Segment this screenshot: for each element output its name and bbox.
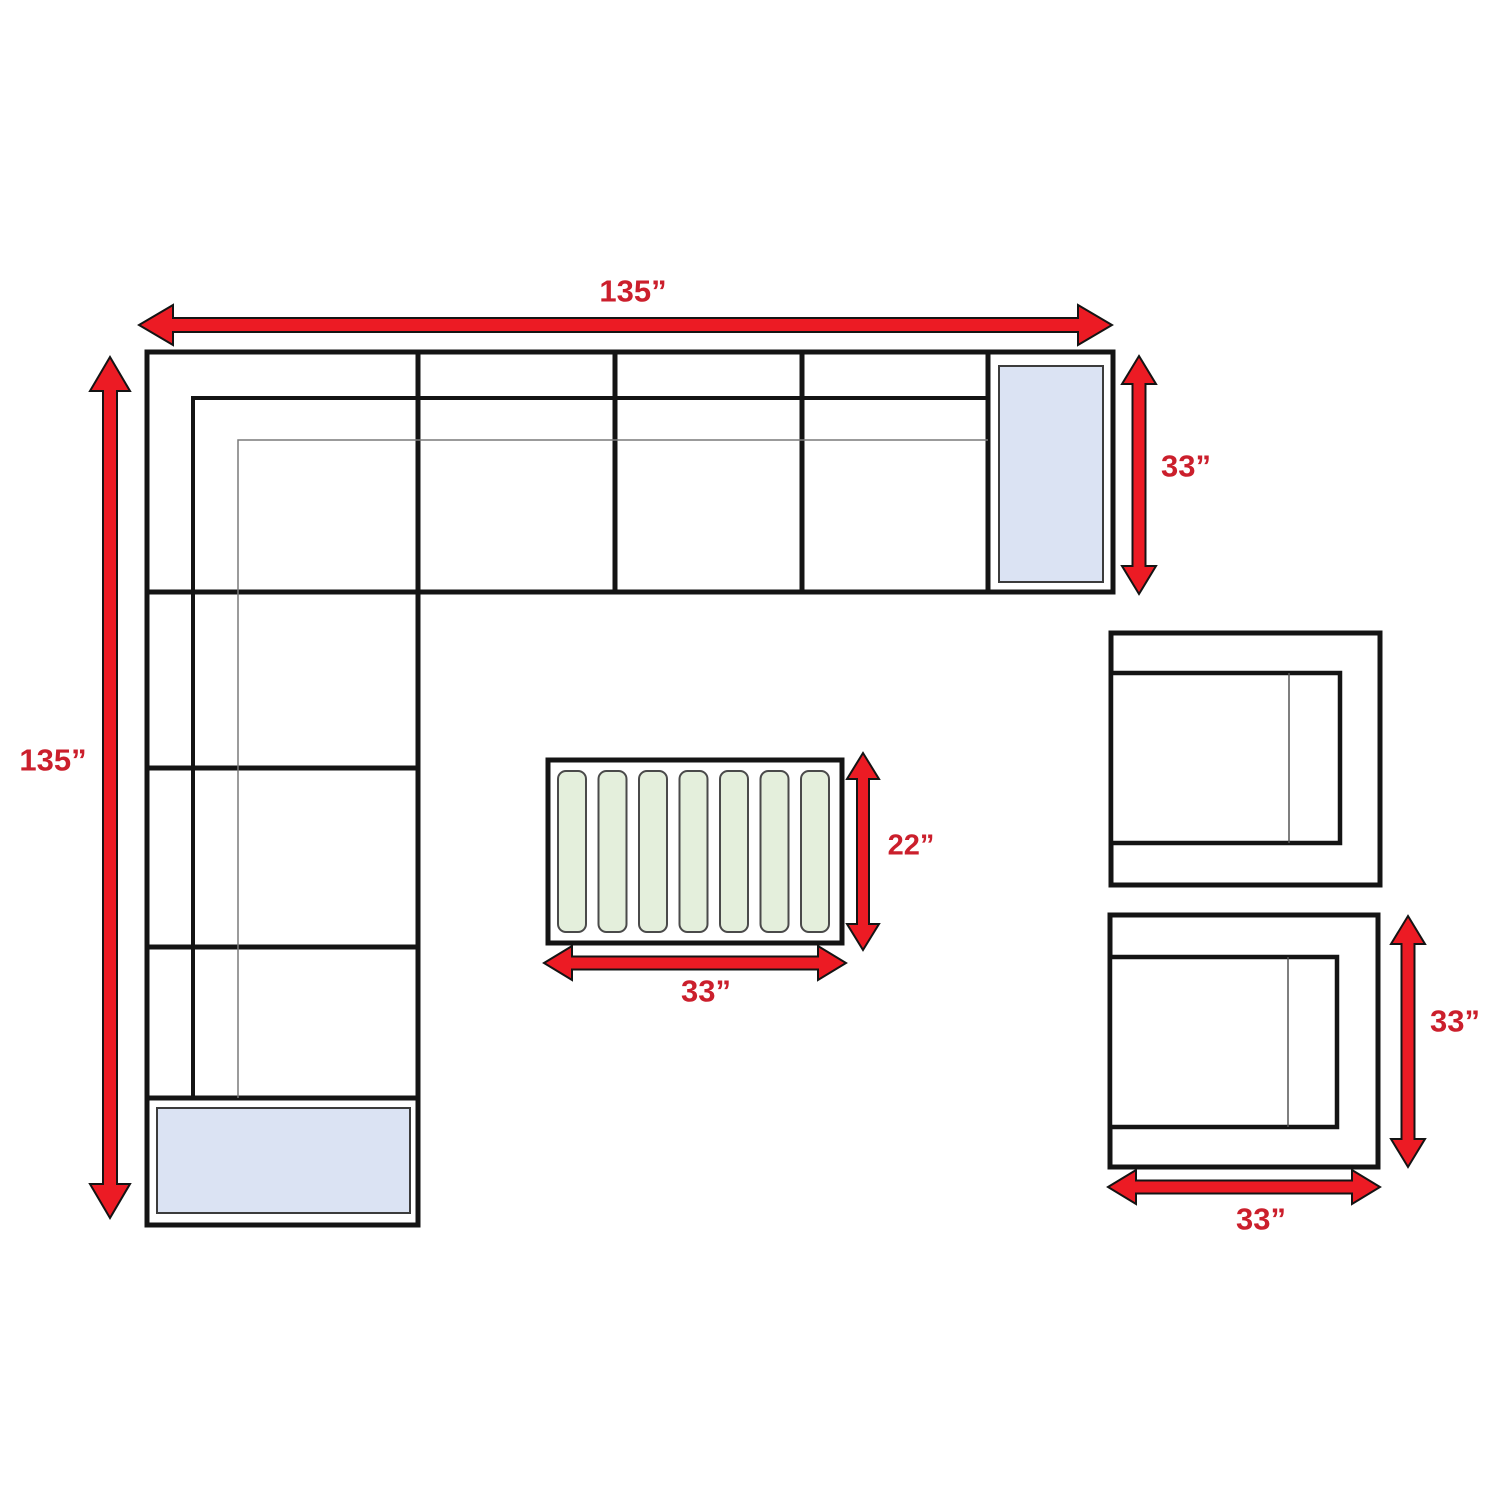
chair-width-label: 33” xyxy=(1236,1204,1286,1235)
arrow-chair-height xyxy=(1391,916,1425,1167)
end-cushion-top-right xyxy=(999,366,1103,582)
arrow-chair-width xyxy=(1108,1170,1380,1204)
arrow-sofa-length xyxy=(90,357,130,1218)
table-depth-label: 22” xyxy=(888,832,935,861)
arrow-sofa-width xyxy=(139,305,1112,345)
table-slat xyxy=(801,771,829,932)
end-cushion-bottom-left xyxy=(157,1108,410,1213)
coffee-table xyxy=(548,760,842,943)
chair-height-label: 33” xyxy=(1430,1006,1480,1037)
club-chair-bottom xyxy=(1110,915,1378,1167)
table-slat xyxy=(639,771,667,932)
sofa-length-label: 135” xyxy=(19,745,86,776)
chair-seat xyxy=(1110,957,1337,1127)
furniture-dimension-diagram: 135” 135” 33” 22” 33” 33” 33” xyxy=(0,0,1500,1500)
table-slat xyxy=(761,771,789,932)
table-slat xyxy=(558,771,586,932)
sofa-width-label: 135” xyxy=(599,276,666,307)
table-slat xyxy=(680,771,708,932)
arrow-sofa-depth xyxy=(1122,356,1156,594)
table-width-label: 33” xyxy=(681,976,731,1007)
diagram-shapes xyxy=(0,0,1500,1500)
table-slat xyxy=(720,771,748,932)
chair-seat xyxy=(1111,673,1340,843)
club-chair-top xyxy=(1111,633,1380,885)
table-slat xyxy=(599,771,627,932)
sofa-depth-label: 33” xyxy=(1161,451,1211,482)
arrow-table-depth xyxy=(847,753,879,950)
